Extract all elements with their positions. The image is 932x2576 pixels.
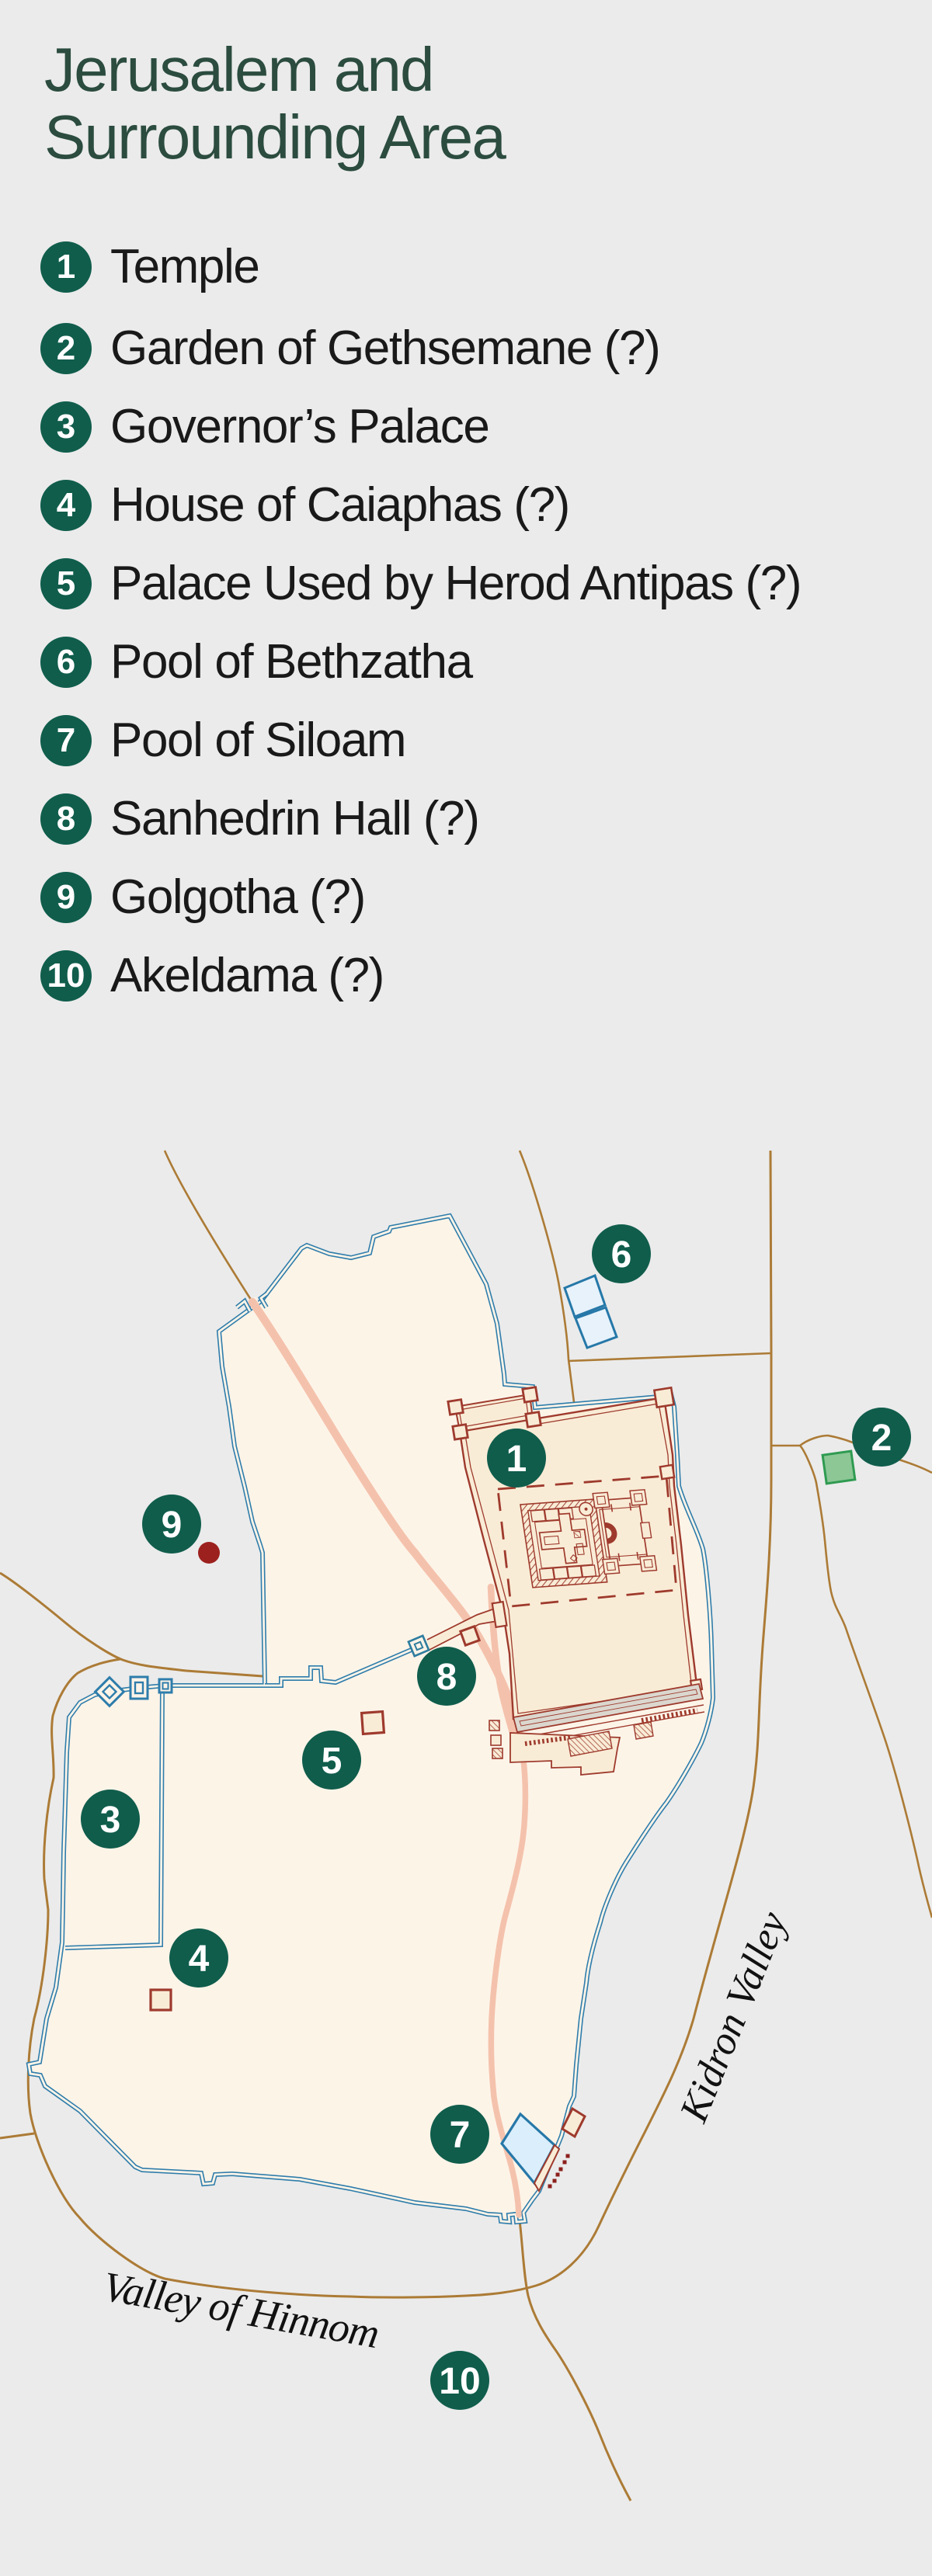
svg-text:Valley of Hinnom: Valley of Hinnom	[99, 2263, 382, 2357]
svg-text:1: 1	[506, 1439, 527, 1480]
svg-text:2: 2	[871, 1418, 892, 1459]
svg-text:10: 10	[439, 2361, 480, 2402]
svg-text:6: 6	[611, 1234, 632, 1276]
svg-text:5: 5	[322, 1741, 343, 1782]
svg-text:Kidron Valley: Kidron Valley	[671, 1905, 796, 2129]
svg-text:3: 3	[100, 1800, 121, 1841]
svg-text:7: 7	[450, 2115, 471, 2156]
svg-text:8: 8	[436, 1657, 457, 1698]
svg-text:9: 9	[162, 1505, 183, 1546]
svg-text:4: 4	[189, 1939, 210, 1980]
